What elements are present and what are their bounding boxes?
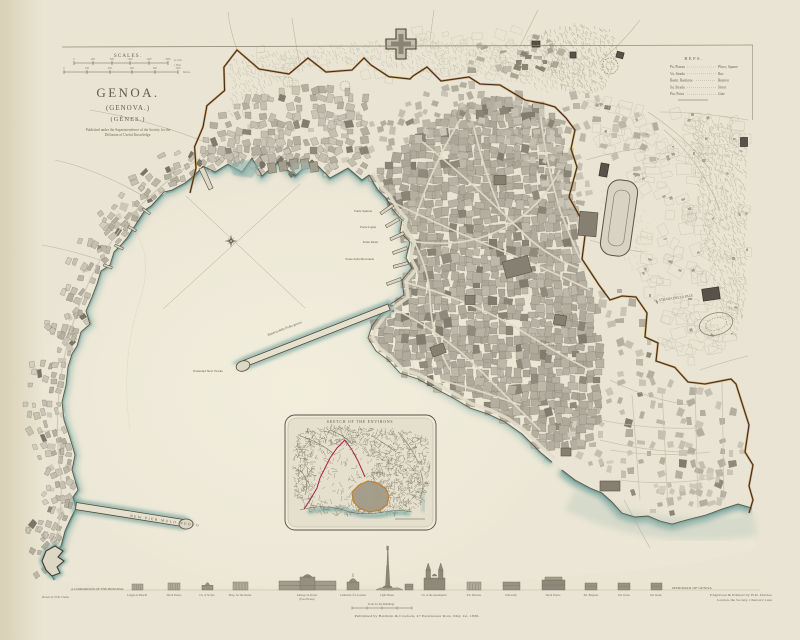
svg-text:(Poor House): (Poor House) [300, 598, 315, 601]
svg-text:Ch. of St.Siro: Ch. of St.Siro [199, 594, 215, 597]
svg-text:A COMPARISON OF THE PRINCIPAL: A COMPARISON OF THE PRINCIPAL [71, 587, 124, 591]
svg-text:Pal. Doria: Pal. Doria [618, 594, 630, 597]
svg-text:Sa. Strada: Sa. Strada [670, 85, 685, 89]
svg-text:Ducal Palace: Ducal Palace [167, 594, 182, 597]
svg-text:Ponte Spinola: Ponte Spinola [354, 209, 372, 213]
svg-text:Gate: Gate [718, 92, 725, 96]
svg-text:Pal. Reale: Pal. Reale [650, 594, 662, 597]
svg-text:Light House: Light House [380, 594, 395, 597]
svg-text:Albergo de Poveri: Albergo de Poveri [297, 594, 318, 597]
svg-text:1200: 1200 [127, 58, 133, 61]
svg-text:1600: 1600 [146, 58, 152, 61]
svg-text:Pal. Brignole: Pal. Brignole [584, 594, 600, 597]
svg-text:Scale for the Buildings: Scale for the Buildings [368, 602, 395, 606]
svg-text:MERIDIAN OF GENOA: MERIDIAN OF GENOA [672, 586, 713, 590]
svg-text:Diffusion of Useful Knowledge.: Diffusion of Useful Knowledge. [105, 133, 152, 137]
svg-text:Pal. Durazzo: Pal. Durazzo [467, 594, 482, 597]
svg-text:Ponte Legna: Ponte Legna [360, 225, 377, 229]
svg-text:Drawn by W.B. Clarke: Drawn by W.B. Clarke [42, 596, 70, 599]
svg-text:Pa. Piazza: Pa. Piazza [670, 65, 685, 69]
svg-text:(GÊNES.): (GÊNES.) [111, 115, 146, 123]
svg-text:Engraved & Printed by B.R. Dav: Engraved & Printed by B.R. Davies [710, 594, 772, 597]
svg-text:Published under the Superinten: Published under the Superintendence of t… [86, 128, 171, 132]
svg-text:Loggia de Banchi: Loggia de Banchi [127, 594, 147, 597]
svg-text:Va. Strada: Va. Strada [670, 72, 685, 76]
svg-text:1000: 1000 [175, 67, 181, 70]
svg-text:Street: Street [718, 85, 727, 89]
svg-text:London, the Society, Chancery: London, the Society, Chancery Lane [717, 599, 773, 602]
svg-text:Hosp. for the Insane: Hosp. for the Insane [229, 594, 252, 597]
svg-text:Rue: Rue [717, 72, 724, 76]
svg-text:Ch. of the Assumption: Ch. of the Assumption [421, 594, 447, 597]
svg-text:Pta. Porta: Pta. Porta [670, 92, 684, 96]
svg-text:REFS.: REFS. [684, 56, 703, 61]
svg-text:Metres: Metres [183, 71, 190, 74]
svg-text:Ducal Palace: Ducal Palace [546, 594, 561, 597]
svg-text:(GENOVA.): (GENOVA.) [106, 104, 150, 112]
svg-text:Ponte Reale: Ponte Reale [363, 240, 379, 244]
svg-text:pr. Inch: pr. Inch [174, 59, 183, 62]
svg-text:University: University [505, 594, 517, 597]
svg-text:Extended New Works: Extended New Works [193, 369, 223, 373]
svg-text:GENOA.: GENOA. [96, 85, 159, 100]
svg-text:2000: 2000 [165, 58, 171, 61]
svg-text:Bastn. Bastione: Bastn. Bastione [670, 79, 693, 83]
svg-text:Ponte della Mercanzia: Ponte della Mercanzia [346, 257, 375, 261]
svg-text:Bastion: Bastion [718, 79, 729, 83]
svg-text:SKETCH OF THE ENVIRONS: SKETCH OF THE ENVIRONS [327, 420, 394, 424]
svg-text:Cathedral of S.Lorenzo: Cathedral of S.Lorenzo [340, 594, 367, 597]
